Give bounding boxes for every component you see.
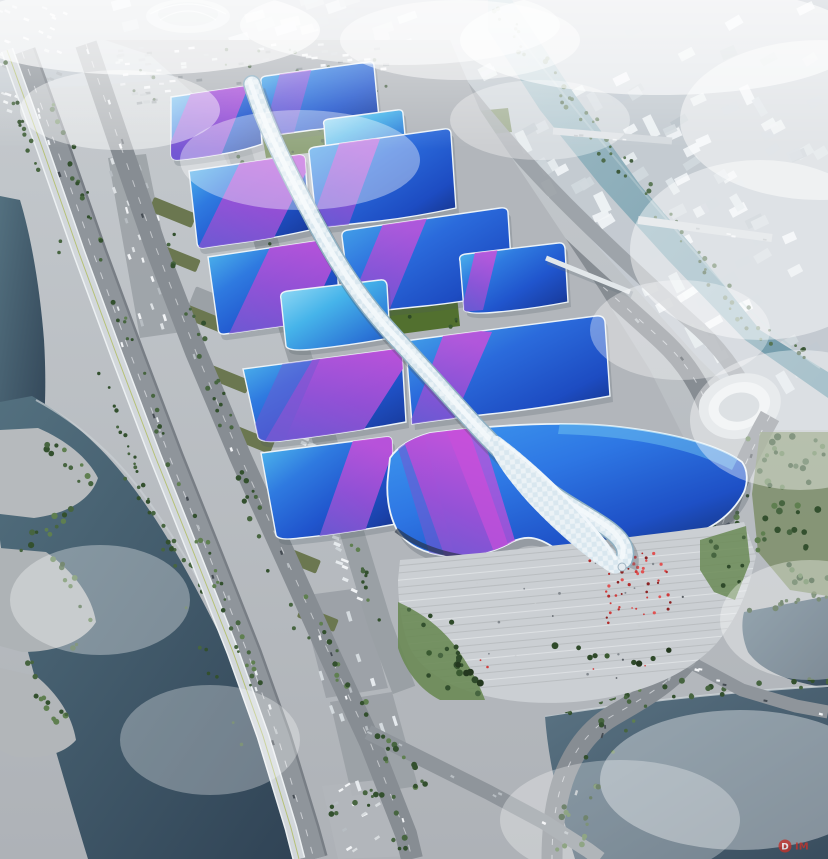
person-dot xyxy=(618,606,620,608)
tree-dot xyxy=(220,582,224,586)
tree-dot xyxy=(386,738,391,743)
tree-dot xyxy=(213,397,216,400)
tree-dot xyxy=(332,661,337,666)
tree-dot xyxy=(167,243,171,247)
tree-dot xyxy=(146,500,150,504)
tree-dot xyxy=(161,524,165,528)
tree-dot xyxy=(229,626,233,630)
palm-tree xyxy=(456,670,463,677)
tree-dot xyxy=(154,429,158,433)
tree-dot xyxy=(365,571,369,575)
person-dot xyxy=(634,587,636,589)
person-dot xyxy=(586,673,589,676)
tree-dot xyxy=(755,537,761,543)
roof-garden-tree xyxy=(408,315,412,319)
roof-garden-tree xyxy=(455,320,457,322)
tree-dot xyxy=(193,514,197,518)
tree-dot xyxy=(742,536,746,540)
tree-dot xyxy=(771,503,777,509)
tree-dot xyxy=(791,679,797,685)
tree-dot xyxy=(157,424,162,429)
tree-dot xyxy=(68,506,74,512)
tree-dot xyxy=(383,756,388,761)
person-dot xyxy=(631,607,633,609)
tree-dot xyxy=(327,639,333,645)
tree-dot xyxy=(126,337,129,340)
tree-dot xyxy=(195,540,199,544)
tree-dot xyxy=(234,645,238,649)
tree-dot xyxy=(258,505,263,510)
person-dot xyxy=(622,659,624,661)
tree-dot xyxy=(378,618,381,621)
tree-dot xyxy=(394,810,399,815)
tree-dot xyxy=(421,623,426,628)
tree-dot xyxy=(250,674,255,679)
tree-dot xyxy=(88,481,93,486)
tree-dot xyxy=(59,239,63,243)
tree-dot xyxy=(205,386,210,391)
tree-dot xyxy=(152,513,155,516)
tree-dot xyxy=(364,586,368,590)
tree-dot xyxy=(375,733,381,739)
tree-dot xyxy=(53,718,57,722)
tree-dot xyxy=(236,475,242,481)
tree-dot xyxy=(713,544,719,550)
tree-dot xyxy=(407,608,411,612)
tree-dot xyxy=(361,580,364,583)
person-dot xyxy=(641,570,644,573)
person-dot xyxy=(624,592,626,594)
tree-dot xyxy=(584,755,589,760)
tree-dot xyxy=(151,394,155,398)
tree-dot xyxy=(62,512,67,517)
tree-dot xyxy=(215,675,219,679)
person-dot xyxy=(658,595,661,598)
tree-dot xyxy=(116,319,120,323)
tree-dot xyxy=(646,189,651,194)
person-dot xyxy=(618,608,620,610)
tree-dot xyxy=(402,835,408,841)
tree-dot xyxy=(363,790,368,795)
tree-dot xyxy=(49,451,55,457)
tree-dot xyxy=(182,558,186,562)
tree-dot xyxy=(709,539,713,543)
person-dot xyxy=(646,597,648,599)
person-dot xyxy=(666,571,668,573)
tree-dot xyxy=(165,462,170,467)
tree-dot xyxy=(689,693,693,697)
tree-dot xyxy=(202,336,207,341)
tree-dot xyxy=(445,647,449,651)
tree-dot xyxy=(113,405,116,408)
palm-tree xyxy=(605,653,610,658)
person-dot xyxy=(476,583,478,585)
person-dot xyxy=(682,596,684,598)
person-dot xyxy=(628,583,631,586)
palm-tree xyxy=(455,662,461,668)
tree-dot xyxy=(801,529,807,535)
person-dot xyxy=(635,608,637,610)
person-dot xyxy=(621,593,623,595)
person-dot xyxy=(515,655,517,657)
tree-dot xyxy=(391,838,395,842)
person-dot xyxy=(660,563,663,566)
tree-dot xyxy=(75,181,79,185)
tree-dot xyxy=(244,478,249,483)
person-dot xyxy=(480,659,482,661)
tree-dot xyxy=(77,480,80,483)
tree-dot xyxy=(111,300,116,305)
tree-dot xyxy=(44,442,50,448)
palm-tree xyxy=(651,656,656,661)
tree-dot xyxy=(85,473,91,479)
tree-dot xyxy=(336,649,339,652)
tree-dot xyxy=(70,176,75,181)
tree-dot xyxy=(80,196,85,201)
tree-dot xyxy=(222,392,225,395)
person-dot xyxy=(647,582,650,585)
tree-dot xyxy=(795,502,801,508)
tree-dot xyxy=(28,542,34,548)
person-dot xyxy=(488,653,490,655)
tree-dot xyxy=(141,483,146,488)
person-dot xyxy=(645,591,648,594)
tree-dot xyxy=(54,443,58,447)
person-dot xyxy=(645,560,647,562)
tree-dot xyxy=(402,756,406,760)
tree-dot xyxy=(251,660,255,664)
person-dot xyxy=(621,578,624,581)
tree-dot xyxy=(799,686,803,690)
person-dot xyxy=(552,615,554,617)
roof-garden-tree xyxy=(449,325,453,329)
tree-dot xyxy=(162,432,165,435)
tree-dot xyxy=(601,158,605,162)
tree-dot xyxy=(304,594,309,599)
person-dot xyxy=(652,563,654,565)
tree-dot xyxy=(761,531,766,536)
tree-dot xyxy=(216,379,220,383)
tree-dot xyxy=(364,712,369,717)
tree-dot xyxy=(99,238,104,243)
tree-dot xyxy=(740,564,744,568)
tree-dot xyxy=(80,463,84,467)
tree-dot xyxy=(46,700,51,705)
tree-dot xyxy=(756,680,762,686)
tree-dot xyxy=(147,498,149,500)
tree-dot xyxy=(25,660,31,666)
tree-dot xyxy=(29,529,35,535)
tree-dot xyxy=(336,679,339,682)
tree-dot xyxy=(161,548,165,552)
tree-dot xyxy=(201,321,206,326)
tree-dot xyxy=(119,431,123,435)
tree-dot xyxy=(198,538,203,543)
tree-dot xyxy=(48,532,53,537)
tree-dot xyxy=(422,781,428,787)
scene-svg: D IM xyxy=(0,0,828,859)
tree-dot xyxy=(148,511,152,515)
tree-dot xyxy=(322,630,326,634)
tree-dot xyxy=(57,251,61,255)
tree-dot xyxy=(36,168,40,172)
tree-dot xyxy=(762,515,768,521)
tree-dot xyxy=(361,567,364,570)
person-dot xyxy=(558,592,561,595)
tree-dot xyxy=(776,508,783,515)
tree-dot xyxy=(454,645,459,650)
tree-dot xyxy=(237,650,240,653)
tree-dot xyxy=(133,463,136,466)
tree-dot xyxy=(245,495,249,499)
tree-dot xyxy=(51,513,57,519)
tree-dot xyxy=(679,678,685,684)
tree-dot xyxy=(68,163,72,167)
tree-dot xyxy=(814,506,821,513)
tree-dot xyxy=(403,846,408,851)
tree-dot xyxy=(289,603,293,607)
tree-dot xyxy=(794,344,797,347)
tree-dot xyxy=(169,547,174,552)
tree-dot xyxy=(711,553,716,558)
tree-dot xyxy=(257,534,261,538)
palm-tree xyxy=(636,660,642,666)
palm-tree xyxy=(631,660,636,665)
tree-dot xyxy=(173,233,176,236)
tree-dot xyxy=(330,805,334,809)
tree-dot xyxy=(345,682,350,687)
tree-dot xyxy=(62,448,67,453)
tree-dot xyxy=(364,574,367,577)
tree-dot xyxy=(319,622,323,626)
tree-dot xyxy=(245,664,249,668)
tree-dot xyxy=(45,528,49,532)
tree-dot xyxy=(381,735,385,739)
tree-dot xyxy=(254,495,258,499)
tree-dot xyxy=(329,811,335,817)
tree-dot xyxy=(35,531,38,534)
tree-dot xyxy=(69,465,74,470)
tree-dot xyxy=(379,792,385,798)
palm-tree xyxy=(593,653,598,658)
tree-dot xyxy=(292,626,296,630)
person-dot xyxy=(607,595,610,598)
tree-dot xyxy=(137,486,141,490)
palm-tree xyxy=(552,642,559,649)
person-dot xyxy=(635,570,638,573)
person-dot xyxy=(605,590,607,592)
tree-dot xyxy=(63,463,67,467)
person-dot xyxy=(641,553,643,555)
tree-dot xyxy=(252,667,257,672)
person-dot xyxy=(638,624,641,627)
tree-dot xyxy=(133,456,136,459)
hall-row-3-annex xyxy=(460,243,571,318)
person-dot xyxy=(588,559,591,562)
tree-dot xyxy=(155,408,160,413)
tree-dot xyxy=(198,646,202,650)
car xyxy=(604,725,606,729)
tree-dot xyxy=(438,653,443,658)
palm-tree xyxy=(426,650,432,656)
tree-dot xyxy=(240,634,245,639)
tree-dot xyxy=(143,372,146,375)
watermark-text: IM xyxy=(795,842,809,853)
tree-dot xyxy=(616,170,620,174)
tree-dot xyxy=(215,409,219,413)
person-dot xyxy=(644,665,646,667)
tree-dot xyxy=(756,548,761,553)
tree-dot xyxy=(624,695,628,699)
tree-dot xyxy=(307,636,310,639)
tree-dot xyxy=(189,308,192,311)
tree-dot xyxy=(721,583,726,588)
tree-dot xyxy=(204,648,208,652)
tree-dot xyxy=(137,496,141,500)
tree-dot xyxy=(86,191,89,194)
tree-dot xyxy=(34,694,39,699)
tree-dot xyxy=(609,152,612,155)
tree-dot xyxy=(252,490,255,493)
tree-dot xyxy=(334,811,338,815)
tree-dot xyxy=(166,540,171,545)
tree-dot xyxy=(172,539,177,544)
tree-dot xyxy=(229,414,232,417)
tree-dot xyxy=(224,598,227,601)
person-dot xyxy=(644,585,646,587)
tree-dot xyxy=(720,692,725,697)
person-dot xyxy=(653,611,656,614)
tree-dot xyxy=(208,552,211,555)
tree-dot xyxy=(127,445,129,447)
tree-dot xyxy=(787,529,793,535)
person-dot xyxy=(609,611,612,614)
tree-dot xyxy=(116,426,119,429)
tree-dot xyxy=(356,547,361,552)
tree-dot xyxy=(334,673,339,678)
tree-dot xyxy=(61,519,66,524)
person-dot xyxy=(617,581,620,584)
person-dot xyxy=(643,613,645,615)
tree-dot xyxy=(39,697,44,702)
tree-dot xyxy=(173,564,177,568)
tree-dot xyxy=(87,215,90,218)
tree-dot xyxy=(774,527,780,533)
tree-dot xyxy=(59,710,63,714)
tree-dot xyxy=(34,162,37,165)
tree-dot xyxy=(242,499,247,504)
person-dot xyxy=(615,594,618,597)
tree-dot xyxy=(192,315,195,318)
person-dot xyxy=(667,593,670,596)
tree-dot xyxy=(624,174,627,177)
person-dot xyxy=(610,602,612,604)
tree-dot xyxy=(644,705,647,708)
palm-tree xyxy=(587,655,593,661)
spine-end-pavilion xyxy=(618,563,626,571)
tree-dot xyxy=(779,500,785,506)
tree-dot xyxy=(55,525,59,529)
tree-dot xyxy=(803,546,808,551)
tree-dot xyxy=(171,263,176,268)
person-dot xyxy=(486,666,489,669)
tree-dot xyxy=(44,705,50,711)
palm-tree xyxy=(576,645,581,650)
tree-dot xyxy=(445,685,450,690)
person-dot xyxy=(657,579,659,581)
person-dot xyxy=(608,573,610,575)
tree-dot xyxy=(97,372,100,375)
tree-dot xyxy=(350,544,353,547)
person-dot xyxy=(607,622,610,625)
aerial-rendering: D IM xyxy=(0,0,828,859)
tree-dot xyxy=(177,482,181,486)
tree-dot xyxy=(229,425,233,429)
tree-dot xyxy=(99,258,103,262)
tree-dot xyxy=(371,795,374,798)
tree-dot xyxy=(411,762,417,768)
tree-dot xyxy=(266,569,270,573)
tree-dot xyxy=(386,747,390,751)
tree-dot xyxy=(456,655,462,661)
person-dot xyxy=(606,617,608,619)
tree-dot xyxy=(247,516,252,521)
tree-dot xyxy=(221,608,226,613)
tree-dot xyxy=(124,317,127,320)
palm-tree xyxy=(666,648,671,653)
tree-dot xyxy=(624,729,628,733)
tree-dot xyxy=(662,684,667,689)
person-dot xyxy=(669,601,672,604)
tree-dot xyxy=(33,674,38,679)
tree-dot xyxy=(597,152,601,156)
person-dot xyxy=(633,605,635,607)
tree-dot xyxy=(456,651,460,655)
tree-dot xyxy=(428,614,433,619)
tree-dot xyxy=(705,686,711,692)
person-dot xyxy=(657,582,659,584)
tree-dot xyxy=(475,691,481,697)
tree-dot xyxy=(630,159,634,163)
tree-dot xyxy=(108,386,111,389)
tree-dot xyxy=(360,701,364,705)
person-dot xyxy=(617,653,619,655)
tree-dot xyxy=(398,847,402,851)
person-dot xyxy=(645,556,648,559)
tree-dot xyxy=(366,598,369,601)
person-dot xyxy=(535,602,537,604)
tree-dot xyxy=(247,650,251,654)
tree-dot xyxy=(206,540,211,545)
tree-dot xyxy=(127,452,130,455)
tree-dot xyxy=(218,424,222,428)
tree-dot xyxy=(599,722,604,727)
tree-dot xyxy=(236,620,241,625)
tree-dot xyxy=(184,312,188,316)
tree-dot xyxy=(197,354,202,359)
tree-dot xyxy=(20,549,23,552)
tree-dot xyxy=(449,620,454,625)
tree-dot xyxy=(136,470,139,473)
palm-tree xyxy=(467,669,474,676)
person-dot xyxy=(667,608,670,611)
tree-dot xyxy=(413,784,418,789)
tree-dot xyxy=(131,338,134,341)
person-dot xyxy=(642,567,645,570)
tree-dot xyxy=(627,699,632,704)
person-dot xyxy=(616,677,618,679)
tree-dot xyxy=(240,470,245,475)
